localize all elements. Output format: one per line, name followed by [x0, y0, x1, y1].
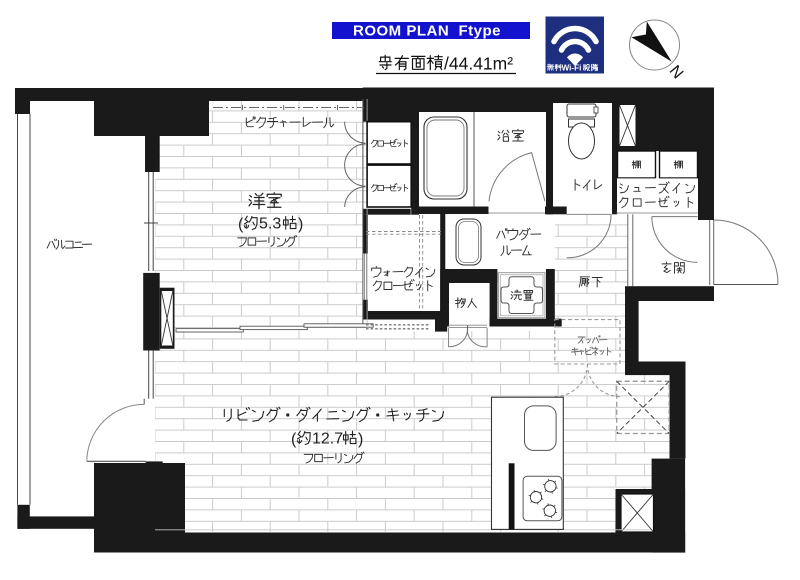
svg-text:5.3: 5.3 — [259, 216, 281, 233]
svg-text:(: ( — [238, 216, 244, 233]
svg-text:(: ( — [291, 431, 297, 448]
svg-text:12.7: 12.7 — [312, 431, 343, 448]
svg-text:): ) — [298, 216, 303, 233]
svg-text:ROOM PLAN Ftype: ROOM PLAN Ftype — [353, 23, 501, 40]
svg-text:/44.41m²: /44.41m² — [444, 54, 513, 74]
svg-text:): ) — [358, 431, 363, 448]
svg-text:Wi-Fi: Wi-Fi — [562, 63, 582, 72]
